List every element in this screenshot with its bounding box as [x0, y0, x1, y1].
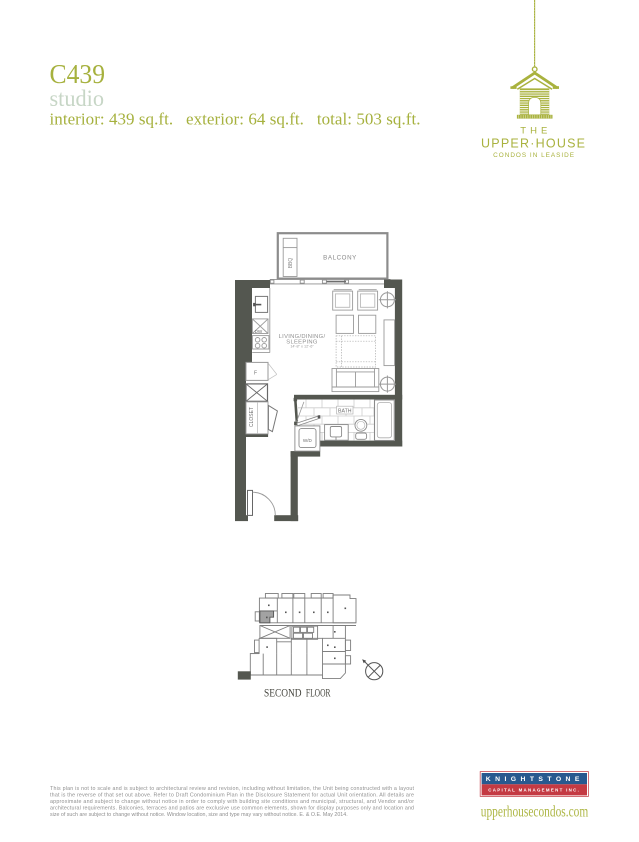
svg-text:interior: 439 sq.ft. exterio: interior: 439 sq.ft. exterior: 64 sq.ft.…: [50, 110, 421, 129]
svg-text:W/D: W/D: [303, 438, 313, 443]
svg-text:approximate and subject to: approximate and subject to change withou…: [50, 799, 414, 805]
svg-text:architectural requirements.: architectural requirements. Balconies, t…: [50, 806, 414, 812]
svg-text:This plan is not to scale: This plan is not to scale and is subject…: [50, 786, 415, 792]
svg-text:CONDOS IN LEASIDE: CONDOS IN LEASIDE: [493, 152, 576, 159]
svg-text:BALCONY: BALCONY: [323, 255, 357, 262]
svg-text:UPPER·HOUSE: UPPER·HOUSE: [481, 137, 588, 151]
svg-text:THE: THE: [520, 126, 551, 137]
svg-text:size of such are subject: size of such are subject to change witho…: [50, 812, 348, 818]
svg-text:SECOND: SECOND: [264, 686, 302, 700]
svg-text:that is the reverse of th: that is the reverse of that set out abov…: [50, 792, 414, 798]
svg-text:CLOSET: CLOSET: [249, 407, 255, 427]
svg-text:C439: C439: [50, 59, 106, 89]
svg-text:F: F: [254, 371, 257, 377]
svg-text:BATH: BATH: [338, 408, 352, 414]
svg-text:14'-8" x 12'-6": 14'-8" x 12'-6": [290, 345, 314, 349]
svg-text:KNIGHTSTONE: KNIGHTSTONE: [486, 776, 583, 783]
svg-text:FLOOR: FLOOR: [306, 686, 331, 700]
svg-text:BBQ: BBQ: [288, 258, 294, 269]
svg-text:upperhousecondos.com: upperhousecondos.com: [481, 804, 589, 821]
svg-text:CAPITAL MANAGEMENT INC.: CAPITAL MANAGEMENT INC.: [488, 788, 580, 793]
svg-text:DW: DW: [255, 329, 263, 334]
svg-text:studio: studio: [50, 86, 105, 111]
